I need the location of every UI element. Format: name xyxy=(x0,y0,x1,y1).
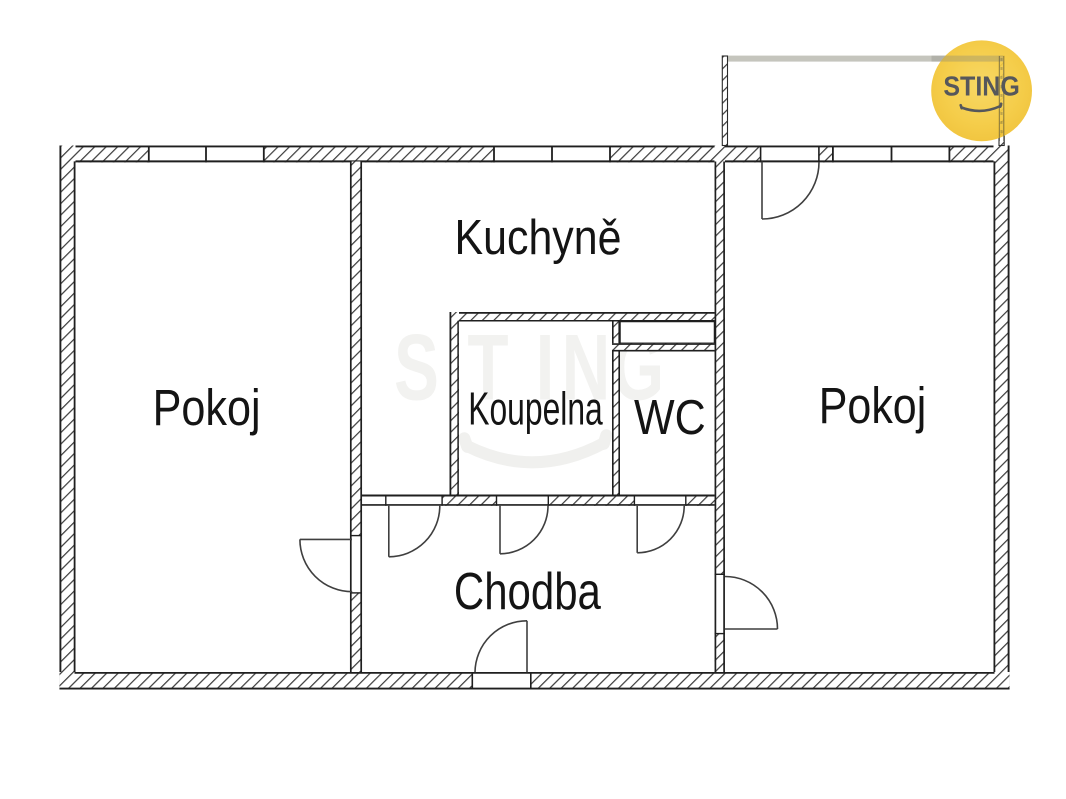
svg-text:WC: WC xyxy=(634,391,706,445)
svg-text:Koupelna: Koupelna xyxy=(468,383,603,435)
svg-text:Chodba: Chodba xyxy=(454,562,601,620)
svg-text:Kuchyně: Kuchyně xyxy=(455,210,622,265)
svg-text:STING: STING xyxy=(943,71,1020,102)
svg-text:Pokoj: Pokoj xyxy=(153,379,261,436)
svg-text:Pokoj: Pokoj xyxy=(819,377,927,434)
svg-text:S: S xyxy=(394,316,439,420)
